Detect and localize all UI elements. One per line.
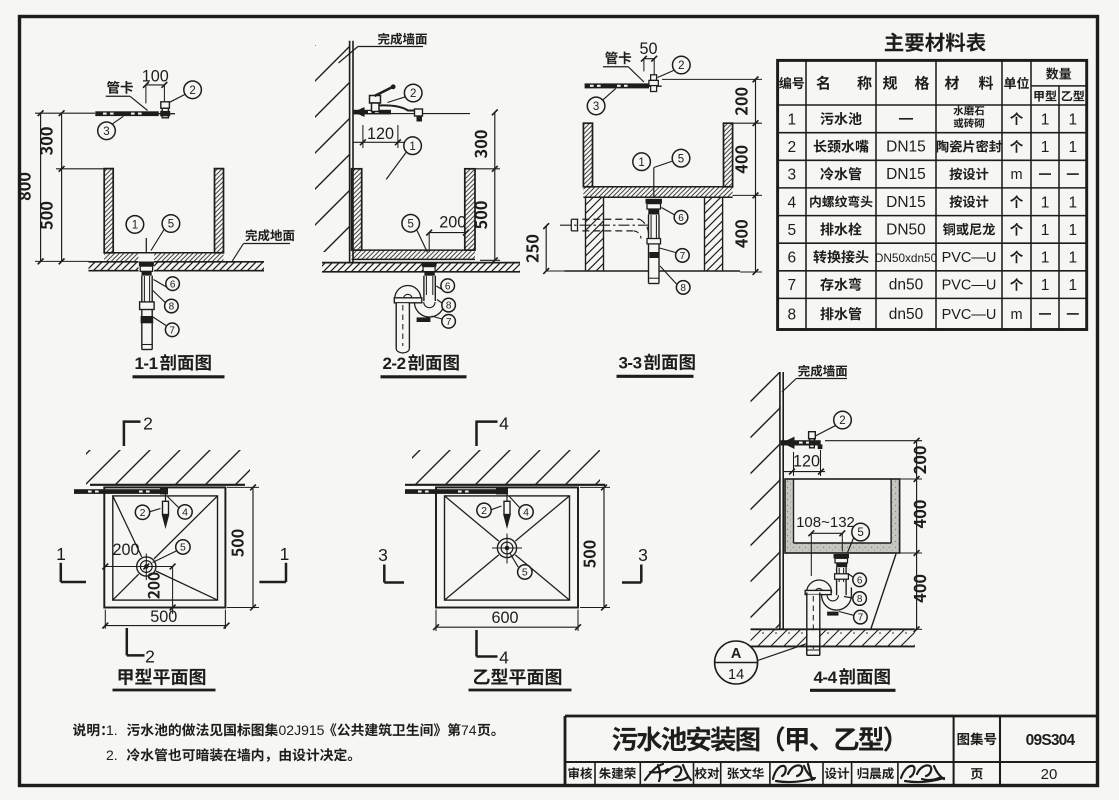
svg-text:3: 3 bbox=[593, 101, 599, 113]
svg-text:DN15: DN15 bbox=[886, 194, 926, 211]
svg-text:2: 2 bbox=[839, 415, 845, 427]
svg-text:DN50xdn50: DN50xdn50 bbox=[875, 251, 938, 265]
svg-text:1: 1 bbox=[1068, 222, 1077, 239]
svg-text:2: 2 bbox=[481, 505, 487, 517]
svg-text:PVC—U: PVC—U bbox=[942, 278, 997, 294]
svg-text:1: 1 bbox=[56, 544, 66, 564]
svg-text:6: 6 bbox=[678, 213, 684, 224]
svg-text:PVC—U: PVC—U bbox=[942, 250, 997, 266]
svg-text:200: 200 bbox=[439, 214, 466, 232]
svg-text:14: 14 bbox=[728, 667, 744, 683]
svg-text:DN15: DN15 bbox=[886, 139, 926, 156]
svg-text:09S304: 09S304 bbox=[1026, 732, 1076, 749]
svg-text:6: 6 bbox=[445, 281, 451, 292]
svg-text:120: 120 bbox=[793, 453, 820, 471]
svg-text:2: 2 bbox=[140, 507, 146, 519]
svg-text:2.: 2. bbox=[106, 747, 118, 763]
svg-text:1: 1 bbox=[1068, 111, 1077, 128]
svg-text:4: 4 bbox=[523, 507, 529, 519]
svg-text:3: 3 bbox=[378, 545, 388, 565]
svg-text:120: 120 bbox=[367, 125, 394, 143]
svg-text:50: 50 bbox=[639, 40, 657, 58]
svg-text:2: 2 bbox=[189, 85, 195, 97]
svg-text:DN50: DN50 bbox=[886, 221, 926, 238]
svg-text:5: 5 bbox=[787, 222, 796, 239]
svg-text:1: 1 bbox=[1041, 111, 1050, 128]
svg-text:dn50: dn50 bbox=[889, 277, 924, 294]
svg-text:1: 1 bbox=[1041, 277, 1050, 294]
svg-text:1.: 1. bbox=[106, 722, 118, 738]
svg-text:6: 6 bbox=[787, 250, 796, 267]
svg-text:2: 2 bbox=[145, 647, 155, 667]
svg-text:02J915: 02J915 bbox=[279, 722, 325, 738]
svg-text:2-2: 2-2 bbox=[382, 354, 405, 373]
svg-text:1: 1 bbox=[1041, 222, 1050, 239]
svg-text:2: 2 bbox=[410, 88, 416, 100]
svg-text:8: 8 bbox=[857, 594, 863, 605]
svg-text:1: 1 bbox=[1068, 139, 1077, 156]
svg-text:5: 5 bbox=[857, 527, 863, 539]
svg-text:3: 3 bbox=[103, 126, 109, 138]
svg-text:1: 1 bbox=[1068, 277, 1077, 294]
svg-text:1: 1 bbox=[132, 219, 138, 231]
svg-text:7: 7 bbox=[858, 613, 864, 624]
svg-text:4: 4 bbox=[499, 648, 509, 668]
svg-text:500: 500 bbox=[150, 608, 177, 626]
svg-text:5: 5 bbox=[678, 153, 684, 165]
svg-text:m: m bbox=[1010, 167, 1022, 183]
svg-text:6: 6 bbox=[170, 279, 176, 290]
svg-text:2: 2 bbox=[678, 60, 684, 72]
svg-text:dn50: dn50 bbox=[889, 306, 924, 323]
svg-text:108~132: 108~132 bbox=[796, 514, 855, 531]
svg-text:7: 7 bbox=[680, 251, 686, 262]
svg-text:74: 74 bbox=[461, 722, 477, 738]
svg-text:DN15: DN15 bbox=[886, 166, 926, 183]
svg-text:3-3: 3-3 bbox=[618, 354, 641, 373]
svg-text:2: 2 bbox=[787, 139, 796, 156]
svg-text:A: A bbox=[731, 646, 742, 662]
svg-text:5: 5 bbox=[407, 218, 413, 230]
svg-text:3: 3 bbox=[638, 545, 648, 565]
svg-text:PVC—U: PVC—U bbox=[942, 307, 997, 323]
svg-text:5: 5 bbox=[522, 567, 528, 579]
svg-text:1: 1 bbox=[1041, 250, 1050, 267]
svg-text:m: m bbox=[1010, 307, 1022, 323]
svg-text:1-1: 1-1 bbox=[134, 354, 157, 373]
svg-text:7: 7 bbox=[169, 325, 175, 336]
svg-text:3: 3 bbox=[787, 167, 796, 184]
svg-text:200: 200 bbox=[112, 541, 139, 559]
svg-text:1: 1 bbox=[409, 141, 415, 153]
svg-text:4-4: 4-4 bbox=[813, 668, 837, 687]
svg-text:4: 4 bbox=[499, 414, 509, 434]
svg-text:8: 8 bbox=[680, 283, 686, 294]
svg-text:7: 7 bbox=[446, 317, 452, 328]
svg-text:8: 8 bbox=[787, 306, 796, 323]
svg-text:1: 1 bbox=[1041, 194, 1050, 211]
svg-text:1: 1 bbox=[1041, 139, 1050, 156]
svg-text:1: 1 bbox=[638, 157, 644, 169]
svg-text:1: 1 bbox=[280, 544, 290, 564]
svg-text:5: 5 bbox=[168, 219, 174, 231]
svg-text:100: 100 bbox=[142, 68, 169, 86]
svg-text:7: 7 bbox=[787, 277, 796, 294]
svg-text:1: 1 bbox=[1068, 194, 1077, 211]
svg-text:600: 600 bbox=[491, 609, 518, 627]
svg-text:5: 5 bbox=[180, 542, 186, 554]
svg-text:1: 1 bbox=[1068, 250, 1077, 267]
svg-text:20: 20 bbox=[1041, 766, 1058, 783]
svg-text:1: 1 bbox=[787, 111, 796, 128]
svg-text:6: 6 bbox=[857, 575, 863, 586]
svg-text:8: 8 bbox=[169, 302, 175, 313]
svg-text:4: 4 bbox=[182, 507, 188, 519]
svg-text:2: 2 bbox=[143, 414, 153, 434]
svg-text:4: 4 bbox=[787, 194, 796, 211]
svg-text:8: 8 bbox=[446, 301, 452, 312]
